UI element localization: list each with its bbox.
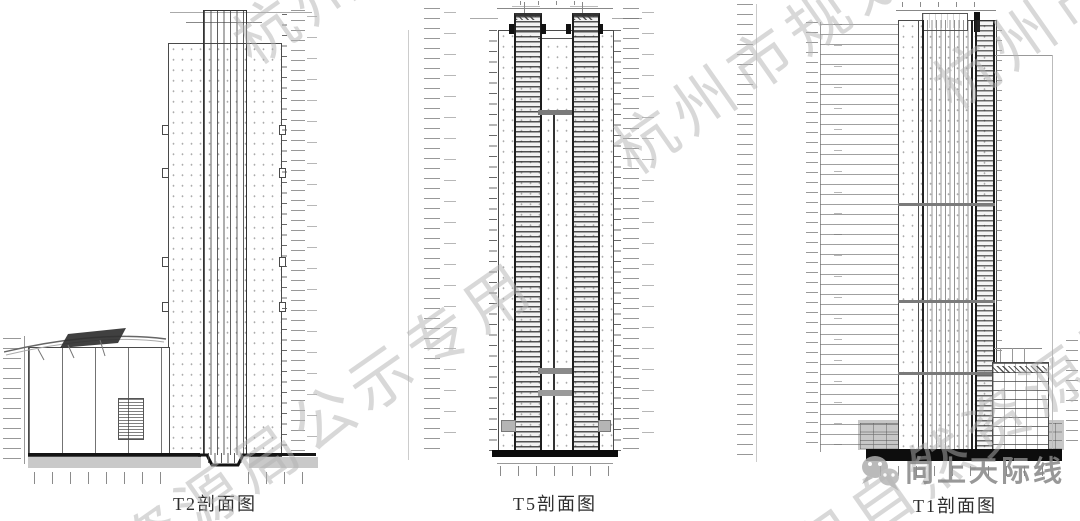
t5-bulkhead-dimension [570,6,598,7]
t1-right-annotation-column [1066,340,1078,450]
t5-section-drawing: T5剖面图 [360,0,720,521]
t2-hatch-band [28,457,318,468]
t2-side-tab [162,125,169,135]
t5-left-annotation-column [424,8,440,456]
t5-farleft-grid-line [408,30,409,460]
t5-core-cap-hatch [516,14,536,20]
t2-side-tab [162,257,169,267]
t5-top-dimension-line [497,8,613,9]
t5-farright-grid-line [756,4,757,462]
t1-section-drawing: T1剖面图 [780,0,1080,521]
t2-ground-line [250,453,316,457]
t5-under-dimension-line [497,463,613,464]
t1-setback-line [995,55,1052,56]
t5-caption: T5剖面图 [475,490,635,516]
t5-side-dimension-line [470,18,498,19]
t2-canopy [4,326,168,362]
t5-antenna [582,2,583,13]
t1-podium-roof-hatch [992,366,1047,373]
t1-refuge-band [898,300,995,303]
t1-podium-railing-post [1012,348,1013,362]
t2-caption: T2剖面图 [140,490,290,516]
t5-roof-tab [541,24,546,34]
skyline-logo: 向上天际线 [858,450,1073,494]
t1-top-dimension-text [902,2,990,7]
t2-pit-core-lines [208,453,242,463]
t1-caption: T1剖面图 [875,492,1035,518]
skyline-logo-text: 向上天际线 [905,458,1065,487]
t1-core-wall [971,20,973,452]
t5-top-dimension-text [520,1,590,5]
t2-side-tab [162,302,169,312]
t2-right-annotation-column-2 [307,16,317,456]
t5-roof-tab [598,24,603,34]
t5-refuge-band [538,390,572,396]
t5-lobby-block [598,420,611,432]
t1-podium-railing-post [1024,348,1025,362]
t5-left-annotation-column-2 [444,12,456,452]
t2-underground-ticks [248,472,314,484]
t2-right-tick-column [282,14,287,458]
t1-refuge-band [898,203,995,206]
t5-core-cap-hatch [574,14,594,20]
t5-right-tick-column [613,30,621,454]
t2-stair-hatch [118,398,144,440]
t1-podium-railing-post [1000,348,1001,362]
t1-right-grid-line [1052,55,1053,450]
t5-mid-divider [553,110,555,453]
t1-podium [992,362,1049,452]
t2-ground-line [28,453,200,457]
t2-podium [28,347,170,457]
t5-lobby-block [501,420,516,432]
t5-right-annotation-column-2 [642,12,654,452]
t2-right-annotation-column [291,10,305,460]
t2-section-drawing: T2剖面图 [0,0,360,521]
t1-right-tick-column [996,30,1002,360]
t5-left-tick-column [489,30,497,454]
t5-bulkhead-dimension [512,6,540,7]
section-drawings-sheet: T2剖面图 [0,0,1080,521]
t5-ground-line [492,450,618,457]
t5-roof-tab [509,24,514,34]
t1-refuge-band [898,372,995,375]
t1-level-lines [820,24,900,452]
t5-core-shaft-right [572,13,600,456]
t1-core-zone [918,20,975,452]
t5-under-dimension-text [500,466,612,476]
t2-underground-ticks [34,472,174,484]
t2-core-shaft [203,10,247,456]
t1-left-annotation-column [806,22,818,452]
wechat-icon [858,452,902,494]
t5-antenna [524,2,525,13]
t1-top-dimension-line [896,10,996,11]
t5-refuge-band [538,110,572,115]
t5-roof-tab [566,24,571,34]
t1-podium-railing [994,348,1042,349]
t1-core-wall [922,20,924,452]
t2-side-tab [162,168,169,178]
t5-right-annotation-column [623,8,639,456]
t5-refuge-band [538,368,572,374]
t5-farright-annotation-column [737,4,753,462]
